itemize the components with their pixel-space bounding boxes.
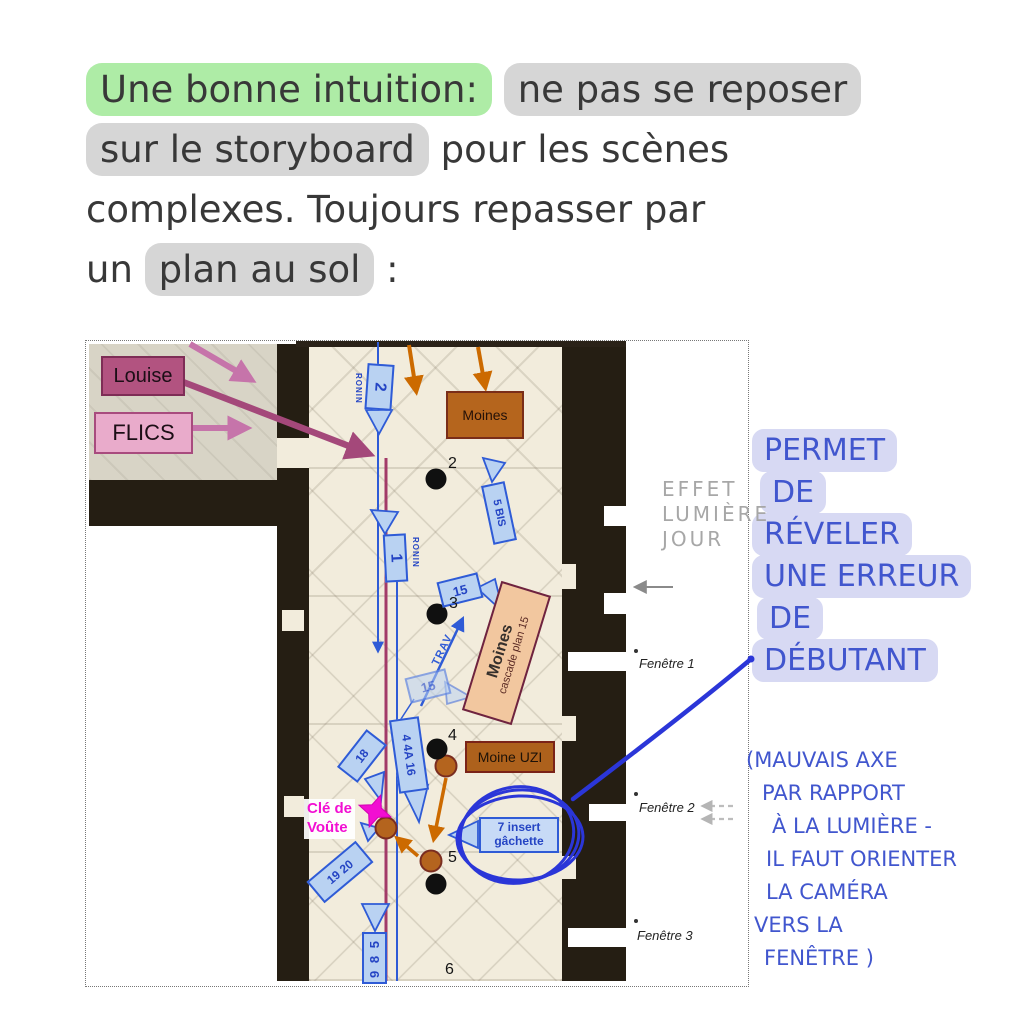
window-1-dot: [634, 649, 638, 653]
effet-line2: LUMIÈRE: [662, 502, 770, 527]
daylight-effect-note: EFFET LUMIÈRE JOUR: [662, 477, 770, 552]
sub-line-1: (MAUVAIS AXE: [746, 744, 957, 777]
window-2-label: Fenêtre 2: [639, 800, 695, 815]
camera-15-ghost-label: 15: [419, 677, 437, 695]
page: Une bonne intuition: ne pas se reposer s…: [0, 0, 1024, 1024]
sub-line-7: FENÊTRE ): [764, 942, 957, 975]
camera-7-label-line1: 7 insert: [498, 821, 541, 835]
annotation-line-une-erreur: UNE ERREUR: [752, 555, 971, 598]
window-3-dot: [634, 919, 638, 923]
position-6: 6: [445, 961, 454, 979]
wall-notch: [284, 796, 304, 817]
window-1-label: Fenêtre 1: [639, 656, 695, 671]
wall-top: [296, 341, 626, 347]
keystone-label-line2: Voûte: [307, 819, 352, 838]
camera-7-insert: 7 insert gâchette: [479, 817, 559, 853]
annotation-sub: (MAUVAIS AXE PAR RAPPORT À LA LUMIÈRE - …: [746, 744, 957, 975]
actor-louise-label: Louise: [114, 365, 173, 388]
actor-box-moines: Moines: [446, 391, 524, 439]
intro-text: Une bonne intuition: ne pas se reposer s…: [86, 68, 861, 308]
moine-uzi-label: Moine UZI: [478, 749, 543, 765]
sub-line-2: PAR RAPPORT: [762, 777, 957, 810]
position-2: 2: [448, 455, 457, 473]
sub-line-6: VERS LA: [754, 909, 957, 942]
camera-7-label-line2: gâchette: [494, 835, 543, 849]
actor-box-flics: FLICS: [94, 412, 193, 454]
camera-5bis-label: 5 BIS: [490, 498, 507, 527]
position-4: 4: [448, 727, 457, 745]
keystone-label: Clé de Voûte: [304, 799, 355, 839]
window-1-opening: [568, 652, 626, 671]
window-2-opening: [589, 804, 626, 821]
intro-line-3-text: complexes. Toujours repasser par: [86, 188, 705, 231]
annotation-line-permet: PERMET: [752, 429, 897, 472]
actor-moines-label: Moines: [462, 407, 507, 423]
intro-line-4: un plan au sol :: [86, 248, 861, 291]
camera-2-label: 2: [370, 382, 389, 392]
sub-line-5: LA CAMÉRA: [766, 876, 957, 909]
wall-notch: [282, 610, 304, 631]
intro-highlight-gray-3: plan au sol: [145, 243, 375, 296]
annotation-line-debutant: DÉBUTANT: [752, 639, 938, 682]
intro-highlight-green: Une bonne intuition:: [86, 63, 492, 116]
pilaster-notch: [562, 716, 576, 741]
sub-line-3: À LA LUMIÈRE -: [772, 810, 957, 843]
position-3: 3: [449, 595, 458, 613]
pilaster-notch-outer: [604, 593, 626, 614]
camera-2-rig-label: RONIN: [354, 373, 363, 404]
actor-box-louise: Louise: [101, 356, 185, 396]
window-3-label: Fenêtre 3: [637, 928, 693, 943]
intro-highlight-gray-2: sur le storyboard: [86, 123, 429, 176]
sub-line-4: IL FAUT ORIENTER: [766, 843, 957, 876]
wall-horizontal: [89, 480, 277, 526]
intro-line-1: Une bonne intuition: ne pas se reposer: [86, 68, 861, 111]
keystone-label-line1: Clé de: [307, 800, 352, 819]
window-3-opening: [568, 928, 626, 947]
intro-highlight-gray-1: ne pas se reposer: [504, 63, 862, 116]
camera-9-8-5: 9 8 5: [362, 932, 387, 984]
intro-line-3: complexes. Toujours repasser par: [86, 188, 861, 231]
pilaster-notch: [562, 856, 576, 879]
intro-line-2-rest: pour les scènes: [441, 128, 730, 171]
position-5: 5: [448, 849, 457, 867]
actor-flics-label: FLICS: [112, 420, 174, 446]
camera-1-label: 1: [386, 553, 404, 563]
door-opening: [277, 438, 309, 468]
camera-1-rig-label: RONIN: [411, 537, 420, 568]
annotation-main: PERMET DE RÉVELER UNE ERREUR DE DÉBUTANT: [752, 433, 971, 685]
pilaster-notch: [562, 564, 576, 589]
camera-2: 2: [364, 363, 394, 411]
floor-plan: Louise FLICS Moines Moines cascade plan …: [85, 340, 749, 987]
camera-9-8-5-label: 9 8 5: [367, 939, 382, 978]
camera-1: 1: [383, 533, 408, 582]
annotation-line-de-2: DE: [757, 597, 823, 640]
effet-line3: JOUR: [662, 527, 770, 552]
camera-4-4a-16-label: 4 4A 16: [399, 733, 419, 776]
intro-line-4-suffix: :: [386, 248, 398, 291]
pilaster-notch-outer: [604, 506, 626, 526]
intro-line-4-prefix: un: [86, 248, 133, 291]
camera-18-label: 18: [352, 746, 371, 765]
annotation-line-reveler: RÉVELER: [752, 513, 912, 556]
intro-line-2: sur le storyboard pour les scènes: [86, 128, 861, 171]
effet-line1: EFFET: [662, 477, 770, 502]
actor-box-moine-uzi: Moine UZI: [465, 741, 555, 773]
window-2-dot: [634, 792, 638, 796]
